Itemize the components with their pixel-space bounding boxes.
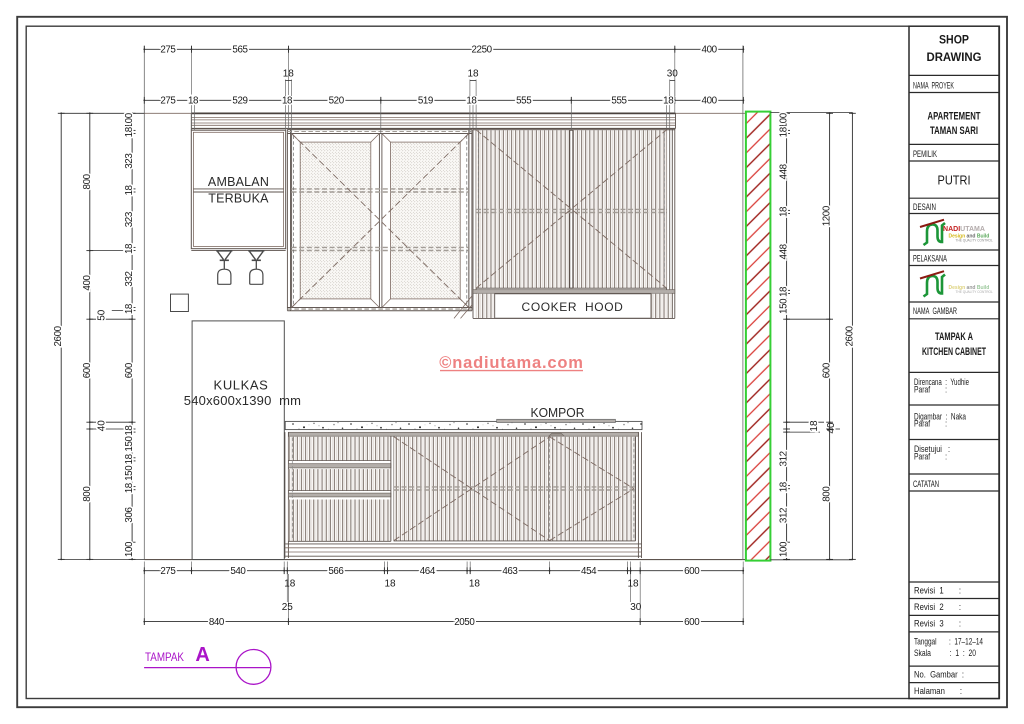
svg-text:150: 150: [779, 298, 790, 314]
svg-text:THE QUALITY CONTROL: THE QUALITY CONTROL: [956, 290, 994, 294]
svg-text:100: 100: [124, 112, 135, 128]
svg-text:600: 600: [684, 566, 700, 577]
svg-text:529: 529: [232, 96, 247, 107]
svg-text:30: 30: [630, 602, 642, 613]
svg-text:555: 555: [611, 96, 627, 107]
svg-text:600: 600: [684, 617, 700, 628]
svg-text:555: 555: [516, 96, 532, 107]
svg-text:2050: 2050: [454, 617, 475, 628]
svg-text:18: 18: [188, 96, 199, 107]
svg-text:275: 275: [160, 45, 176, 56]
svg-text:2250: 2250: [471, 45, 492, 56]
svg-text:TAMAN SARI: TAMAN SARI: [930, 125, 978, 137]
svg-text:Revisi 2 :: Revisi 2 :: [914, 602, 961, 612]
svg-text:18: 18: [124, 482, 135, 493]
svg-text:KULKAS: KULKAS: [214, 378, 269, 393]
svg-text:18: 18: [384, 579, 396, 590]
svg-text:Paraf :: Paraf :: [914, 385, 947, 395]
svg-text:50: 50: [97, 309, 108, 321]
svg-text:100: 100: [779, 112, 790, 128]
svg-text:800: 800: [82, 173, 93, 189]
svg-text:18: 18: [627, 579, 639, 590]
svg-text:150: 150: [124, 465, 135, 481]
svg-text:600: 600: [124, 362, 135, 378]
svg-text:400: 400: [702, 96, 718, 107]
svg-text:18: 18: [467, 69, 479, 80]
svg-text:18: 18: [466, 96, 477, 107]
svg-text:40: 40: [97, 420, 108, 432]
svg-text:312: 312: [779, 451, 790, 466]
svg-text:PELAKSANA: PELAKSANA: [913, 254, 947, 264]
svg-text:18: 18: [124, 243, 135, 254]
svg-text:18: 18: [809, 420, 820, 432]
svg-text:2600: 2600: [844, 325, 855, 346]
svg-text:400: 400: [702, 45, 718, 56]
svg-text:Paraf :: Paraf :: [914, 419, 947, 429]
svg-text:Paraf :: Paraf :: [914, 451, 947, 461]
svg-text:18: 18: [779, 481, 790, 492]
svg-text:323: 323: [124, 153, 135, 169]
svg-text:800: 800: [822, 486, 833, 502]
svg-text:18: 18: [779, 206, 790, 217]
svg-text:NAMA GAMBAR: NAMA GAMBAR: [913, 306, 957, 316]
svg-text:540x600x1390 mm: 540x600x1390 mm: [184, 393, 301, 408]
svg-text:566: 566: [328, 566, 344, 577]
svg-text:DRAWING: DRAWING: [927, 50, 982, 64]
svg-text:PUTRI: PUTRI: [938, 173, 971, 188]
svg-text:454: 454: [581, 566, 597, 577]
svg-text:840: 840: [209, 617, 225, 628]
svg-text:18: 18: [124, 126, 135, 137]
svg-text:150: 150: [124, 435, 135, 451]
svg-text:18: 18: [283, 69, 295, 80]
svg-text:40: 40: [826, 422, 837, 434]
svg-text:CATATAN: CATATAN: [913, 479, 939, 489]
svg-text:18: 18: [469, 579, 481, 590]
svg-text:18: 18: [779, 126, 790, 137]
svg-text:800: 800: [82, 486, 93, 502]
svg-text:600: 600: [82, 362, 93, 378]
svg-text:448: 448: [779, 243, 790, 259]
svg-text:520: 520: [329, 96, 345, 107]
svg-text:A: A: [195, 644, 209, 666]
svg-text:KITCHEN CABINET: KITCHEN CABINET: [922, 346, 986, 358]
svg-text:312: 312: [779, 508, 790, 523]
svg-text:2600: 2600: [53, 325, 64, 346]
svg-text:275: 275: [160, 566, 176, 577]
svg-text:KOMPOR: KOMPOR: [531, 405, 585, 420]
svg-text:TAMPAK A: TAMPAK A: [935, 331, 973, 343]
svg-text:540: 540: [230, 566, 246, 577]
svg-text:18: 18: [663, 96, 674, 107]
svg-text:18: 18: [124, 425, 135, 436]
svg-text:Halaman :: Halaman :: [914, 686, 962, 696]
svg-text:448: 448: [779, 163, 790, 179]
svg-text:NADIUTAMA: NADIUTAMA: [943, 224, 986, 233]
svg-text:COOKER HOOD: COOKER HOOD: [522, 300, 624, 314]
svg-text:18: 18: [282, 96, 293, 107]
svg-text:25: 25: [282, 602, 294, 613]
svg-text:©nadiutama.com: ©nadiutama.com: [439, 354, 583, 372]
svg-text:565: 565: [232, 45, 248, 56]
svg-text:18: 18: [779, 286, 790, 297]
svg-text:464: 464: [420, 566, 436, 577]
svg-text:18: 18: [124, 303, 135, 314]
svg-text:TAMPAK: TAMPAK: [145, 650, 184, 664]
svg-text:400: 400: [82, 274, 93, 290]
svg-text:PEMILIK: PEMILIK: [913, 149, 937, 159]
svg-text:1200: 1200: [822, 205, 833, 226]
svg-text:Tanggal : 17–12–14: Tanggal : 17–12–14: [914, 637, 983, 647]
svg-text:463: 463: [502, 566, 518, 577]
svg-text:NAMA PROYEK: NAMA PROYEK: [913, 81, 954, 91]
svg-text:275: 275: [160, 96, 176, 107]
svg-text:AMBALAN: AMBALAN: [208, 175, 269, 189]
svg-text:100: 100: [124, 541, 135, 557]
svg-text:THE QUALITY CONTROL: THE QUALITY CONTROL: [956, 239, 994, 243]
svg-text:600: 600: [822, 362, 833, 378]
svg-text:306: 306: [124, 506, 135, 522]
svg-text:No. Gambar :: No. Gambar :: [914, 670, 964, 680]
svg-text:Skala : 1 : 20: Skala : 1 : 20: [914, 648, 976, 658]
svg-text:DESAIN: DESAIN: [913, 202, 936, 212]
svg-text:18: 18: [284, 579, 296, 590]
svg-text:332: 332: [124, 271, 135, 286]
svg-text:Revisi 1 :: Revisi 1 :: [914, 586, 961, 596]
svg-text:Revisi 3 :: Revisi 3 :: [914, 619, 961, 629]
svg-text:SHOP: SHOP: [939, 33, 969, 47]
svg-text:18: 18: [124, 185, 135, 196]
svg-text:30: 30: [667, 69, 679, 80]
svg-text:100: 100: [779, 541, 790, 557]
svg-text:TERBUKA: TERBUKA: [208, 192, 269, 206]
svg-text:18: 18: [124, 453, 135, 464]
svg-text:519: 519: [418, 96, 433, 107]
svg-text:323: 323: [124, 211, 135, 227]
svg-text:APARTEMENT: APARTEMENT: [928, 111, 981, 123]
